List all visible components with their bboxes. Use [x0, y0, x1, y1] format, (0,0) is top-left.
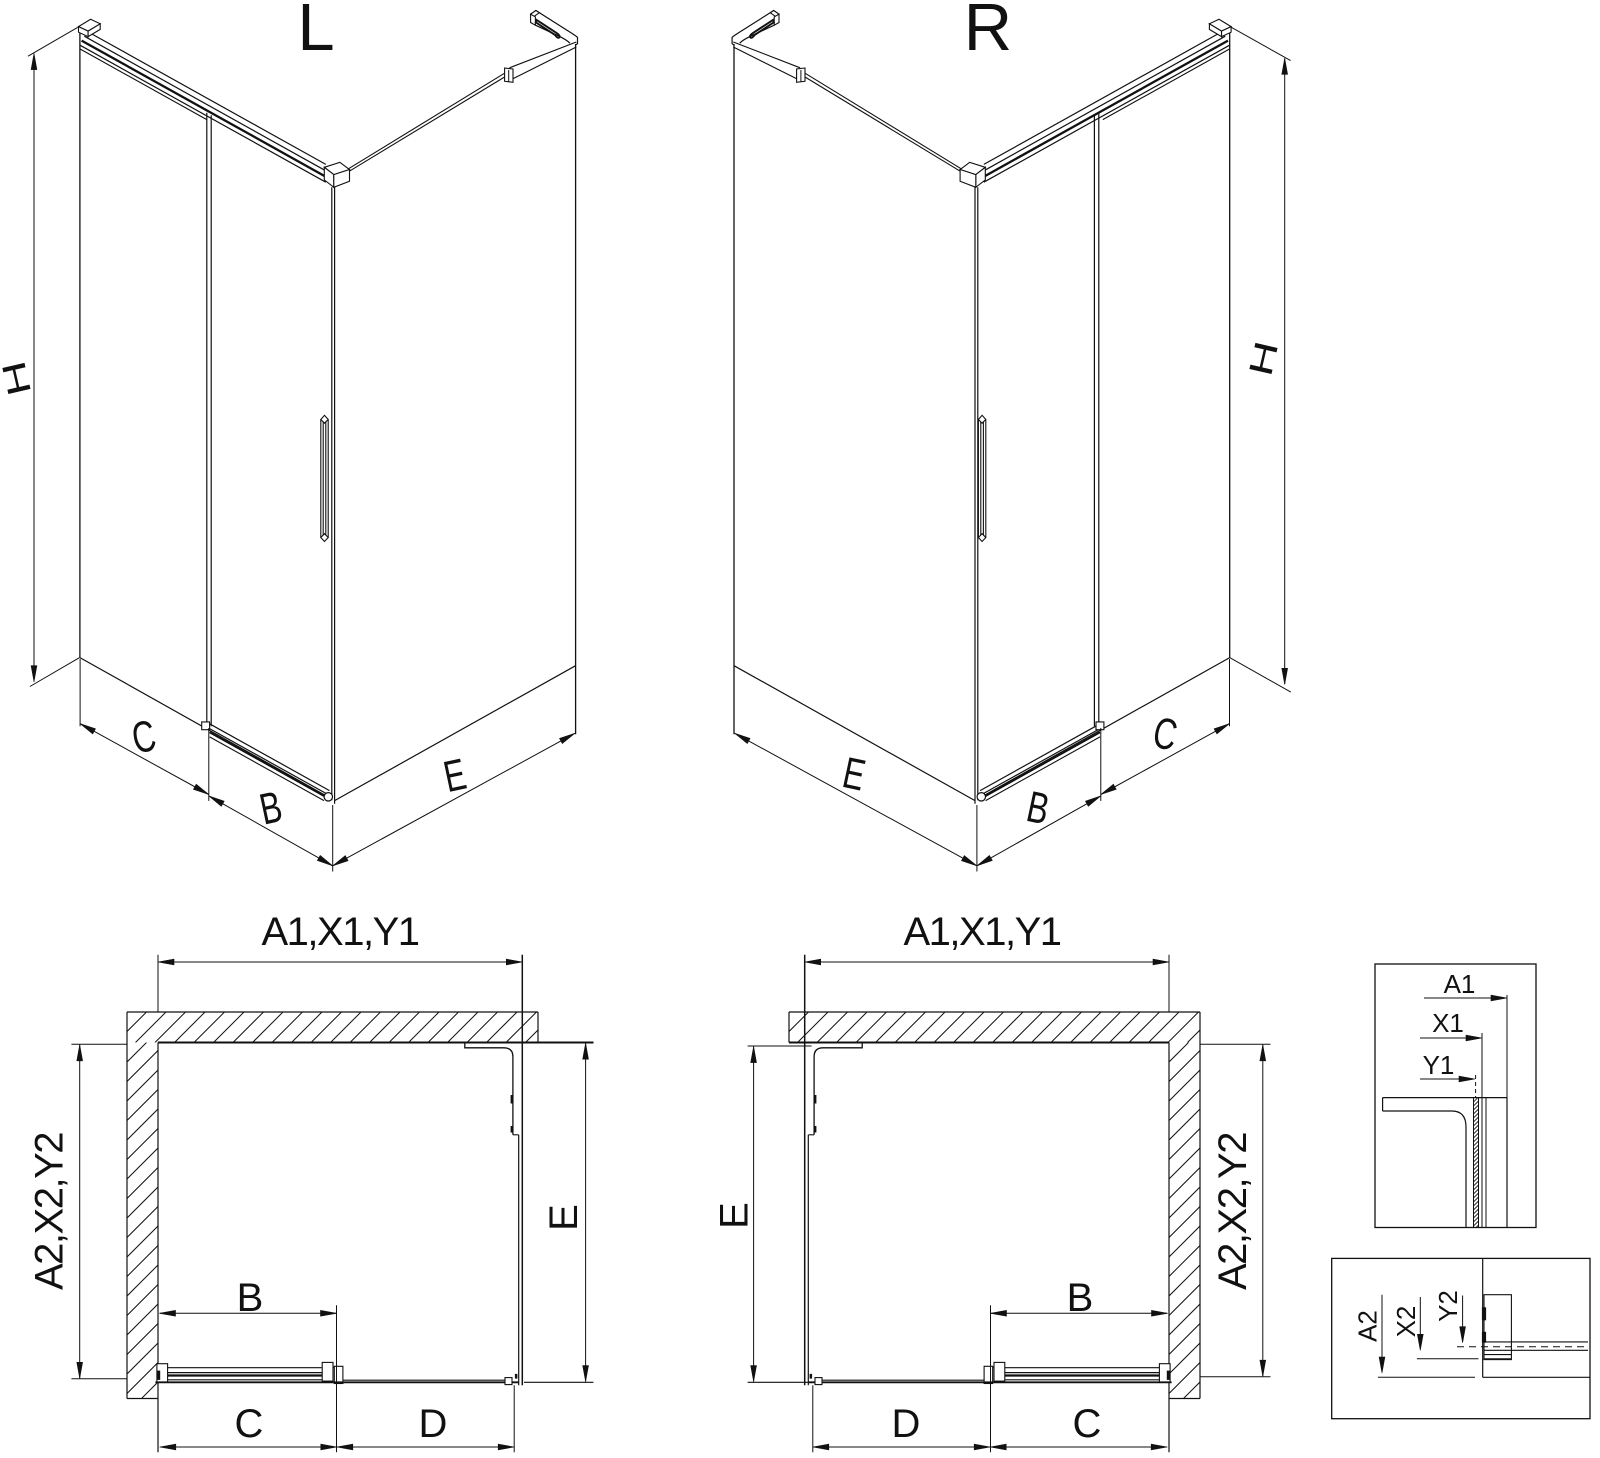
- svg-text:A2,X2,Y2: A2,X2,Y2: [27, 1133, 71, 1290]
- svg-text:E: E: [713, 1202, 757, 1229]
- svg-text:C: C: [1073, 1402, 1102, 1446]
- svg-text:D: D: [892, 1402, 921, 1446]
- svg-text:L: L: [297, 0, 334, 65]
- svg-text:A1,X1,Y1: A1,X1,Y1: [903, 910, 1060, 954]
- svg-text:R: R: [964, 0, 1012, 65]
- svg-text:Y2: Y2: [1433, 1290, 1463, 1322]
- svg-text:E: E: [542, 1204, 586, 1231]
- svg-text:C: C: [235, 1402, 264, 1446]
- svg-text:B: B: [237, 1276, 264, 1320]
- svg-text:A2,X2,Y2: A2,X2,Y2: [1211, 1133, 1255, 1290]
- svg-text:A2: A2: [1352, 1310, 1382, 1342]
- svg-text:Y1: Y1: [1423, 1050, 1455, 1080]
- svg-text:X1: X1: [1432, 1008, 1464, 1038]
- svg-text:A1,X1,Y1: A1,X1,Y1: [261, 910, 418, 954]
- svg-text:B: B: [1067, 1276, 1094, 1320]
- svg-text:X2: X2: [1391, 1306, 1421, 1338]
- svg-text:D: D: [419, 1402, 448, 1446]
- svg-text:A1: A1: [1444, 969, 1476, 999]
